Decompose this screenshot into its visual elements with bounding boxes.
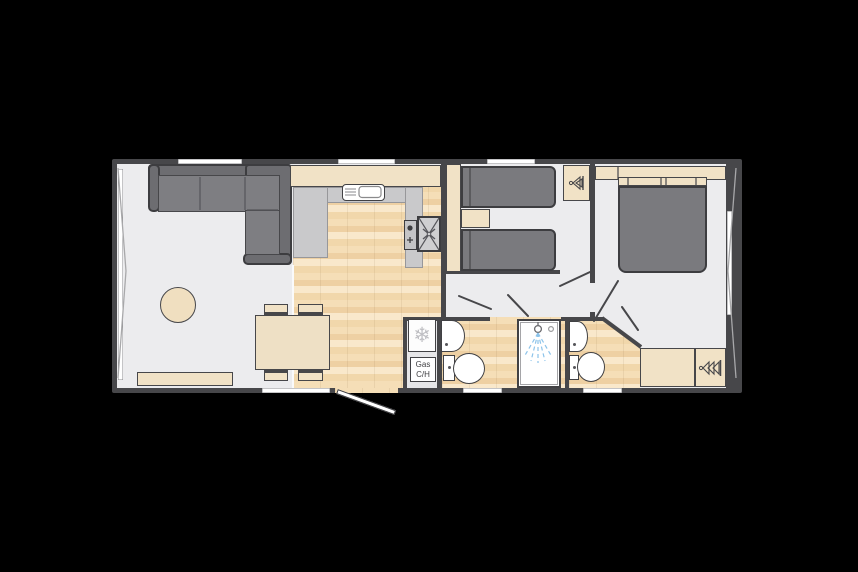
floorplan: ❄ Gas C/H [112,159,742,393]
rear-bay-lines [728,168,736,378]
wall-ensuite-diagonal [602,318,641,347]
plan-line-overlay [112,159,742,393]
pillow-lines [470,167,696,269]
page-background: { "page": { "background": "#000000" }, "… [0,0,858,572]
sofa-cushion-lines [200,177,278,210]
door-swing-lines [459,272,638,330]
entrance-door-open [336,389,396,415]
front-bay-lines [118,168,126,378]
